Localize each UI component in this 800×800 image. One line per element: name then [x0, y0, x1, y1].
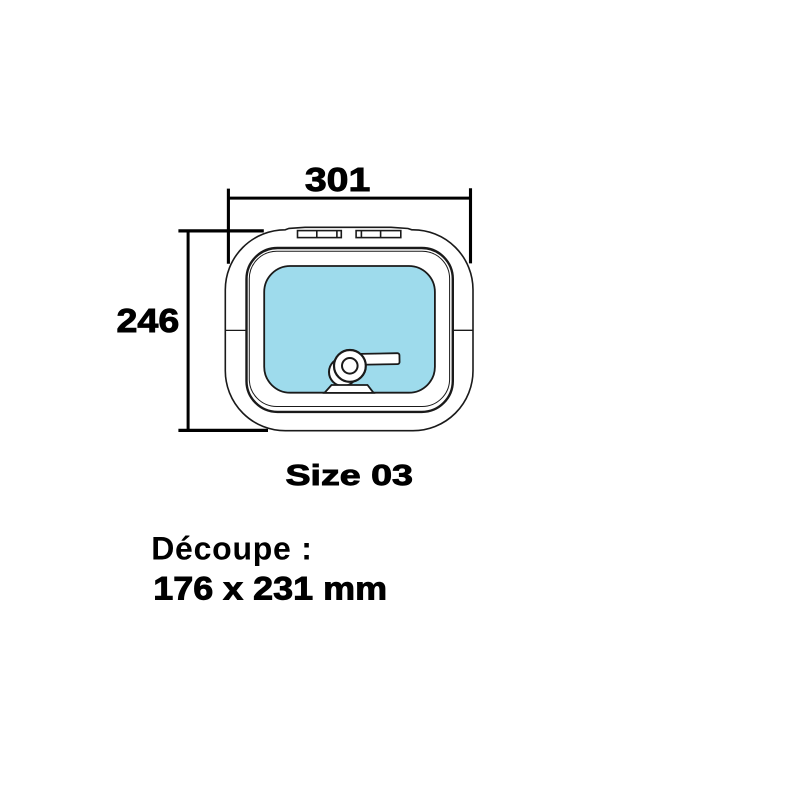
svg-text:246: 246: [117, 303, 180, 339]
svg-text:Size 03: Size 03: [285, 460, 413, 492]
svg-text:176 x 231 mm: 176 x 231 mm: [153, 571, 387, 607]
svg-text:Découpe :: Découpe :: [151, 530, 312, 566]
svg-text:301: 301: [305, 161, 371, 198]
